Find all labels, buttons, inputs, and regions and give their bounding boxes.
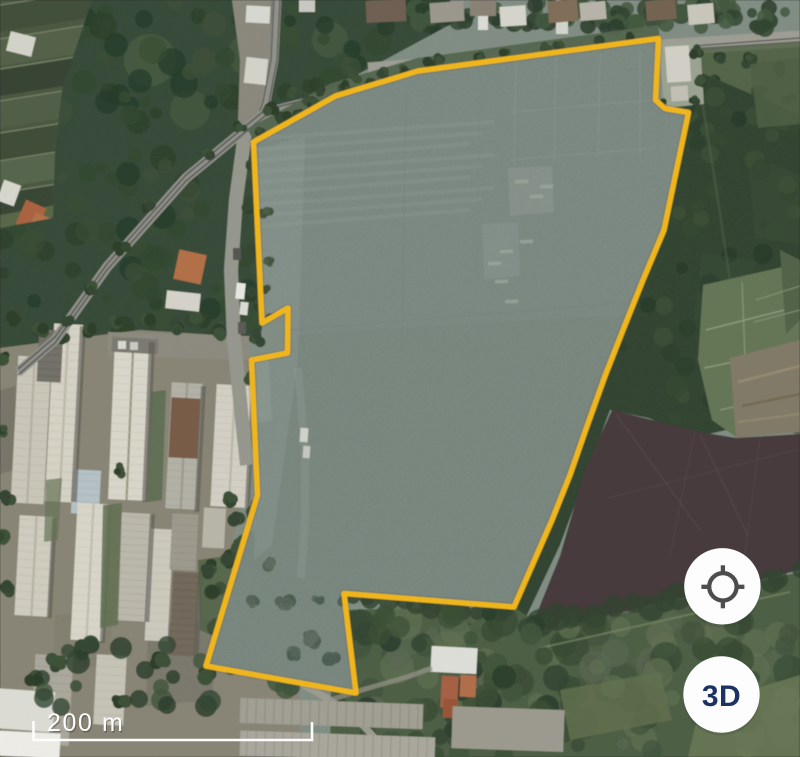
svg-text:200 m: 200 m xyxy=(47,709,124,737)
svg-text:3D: 3D xyxy=(702,680,741,713)
